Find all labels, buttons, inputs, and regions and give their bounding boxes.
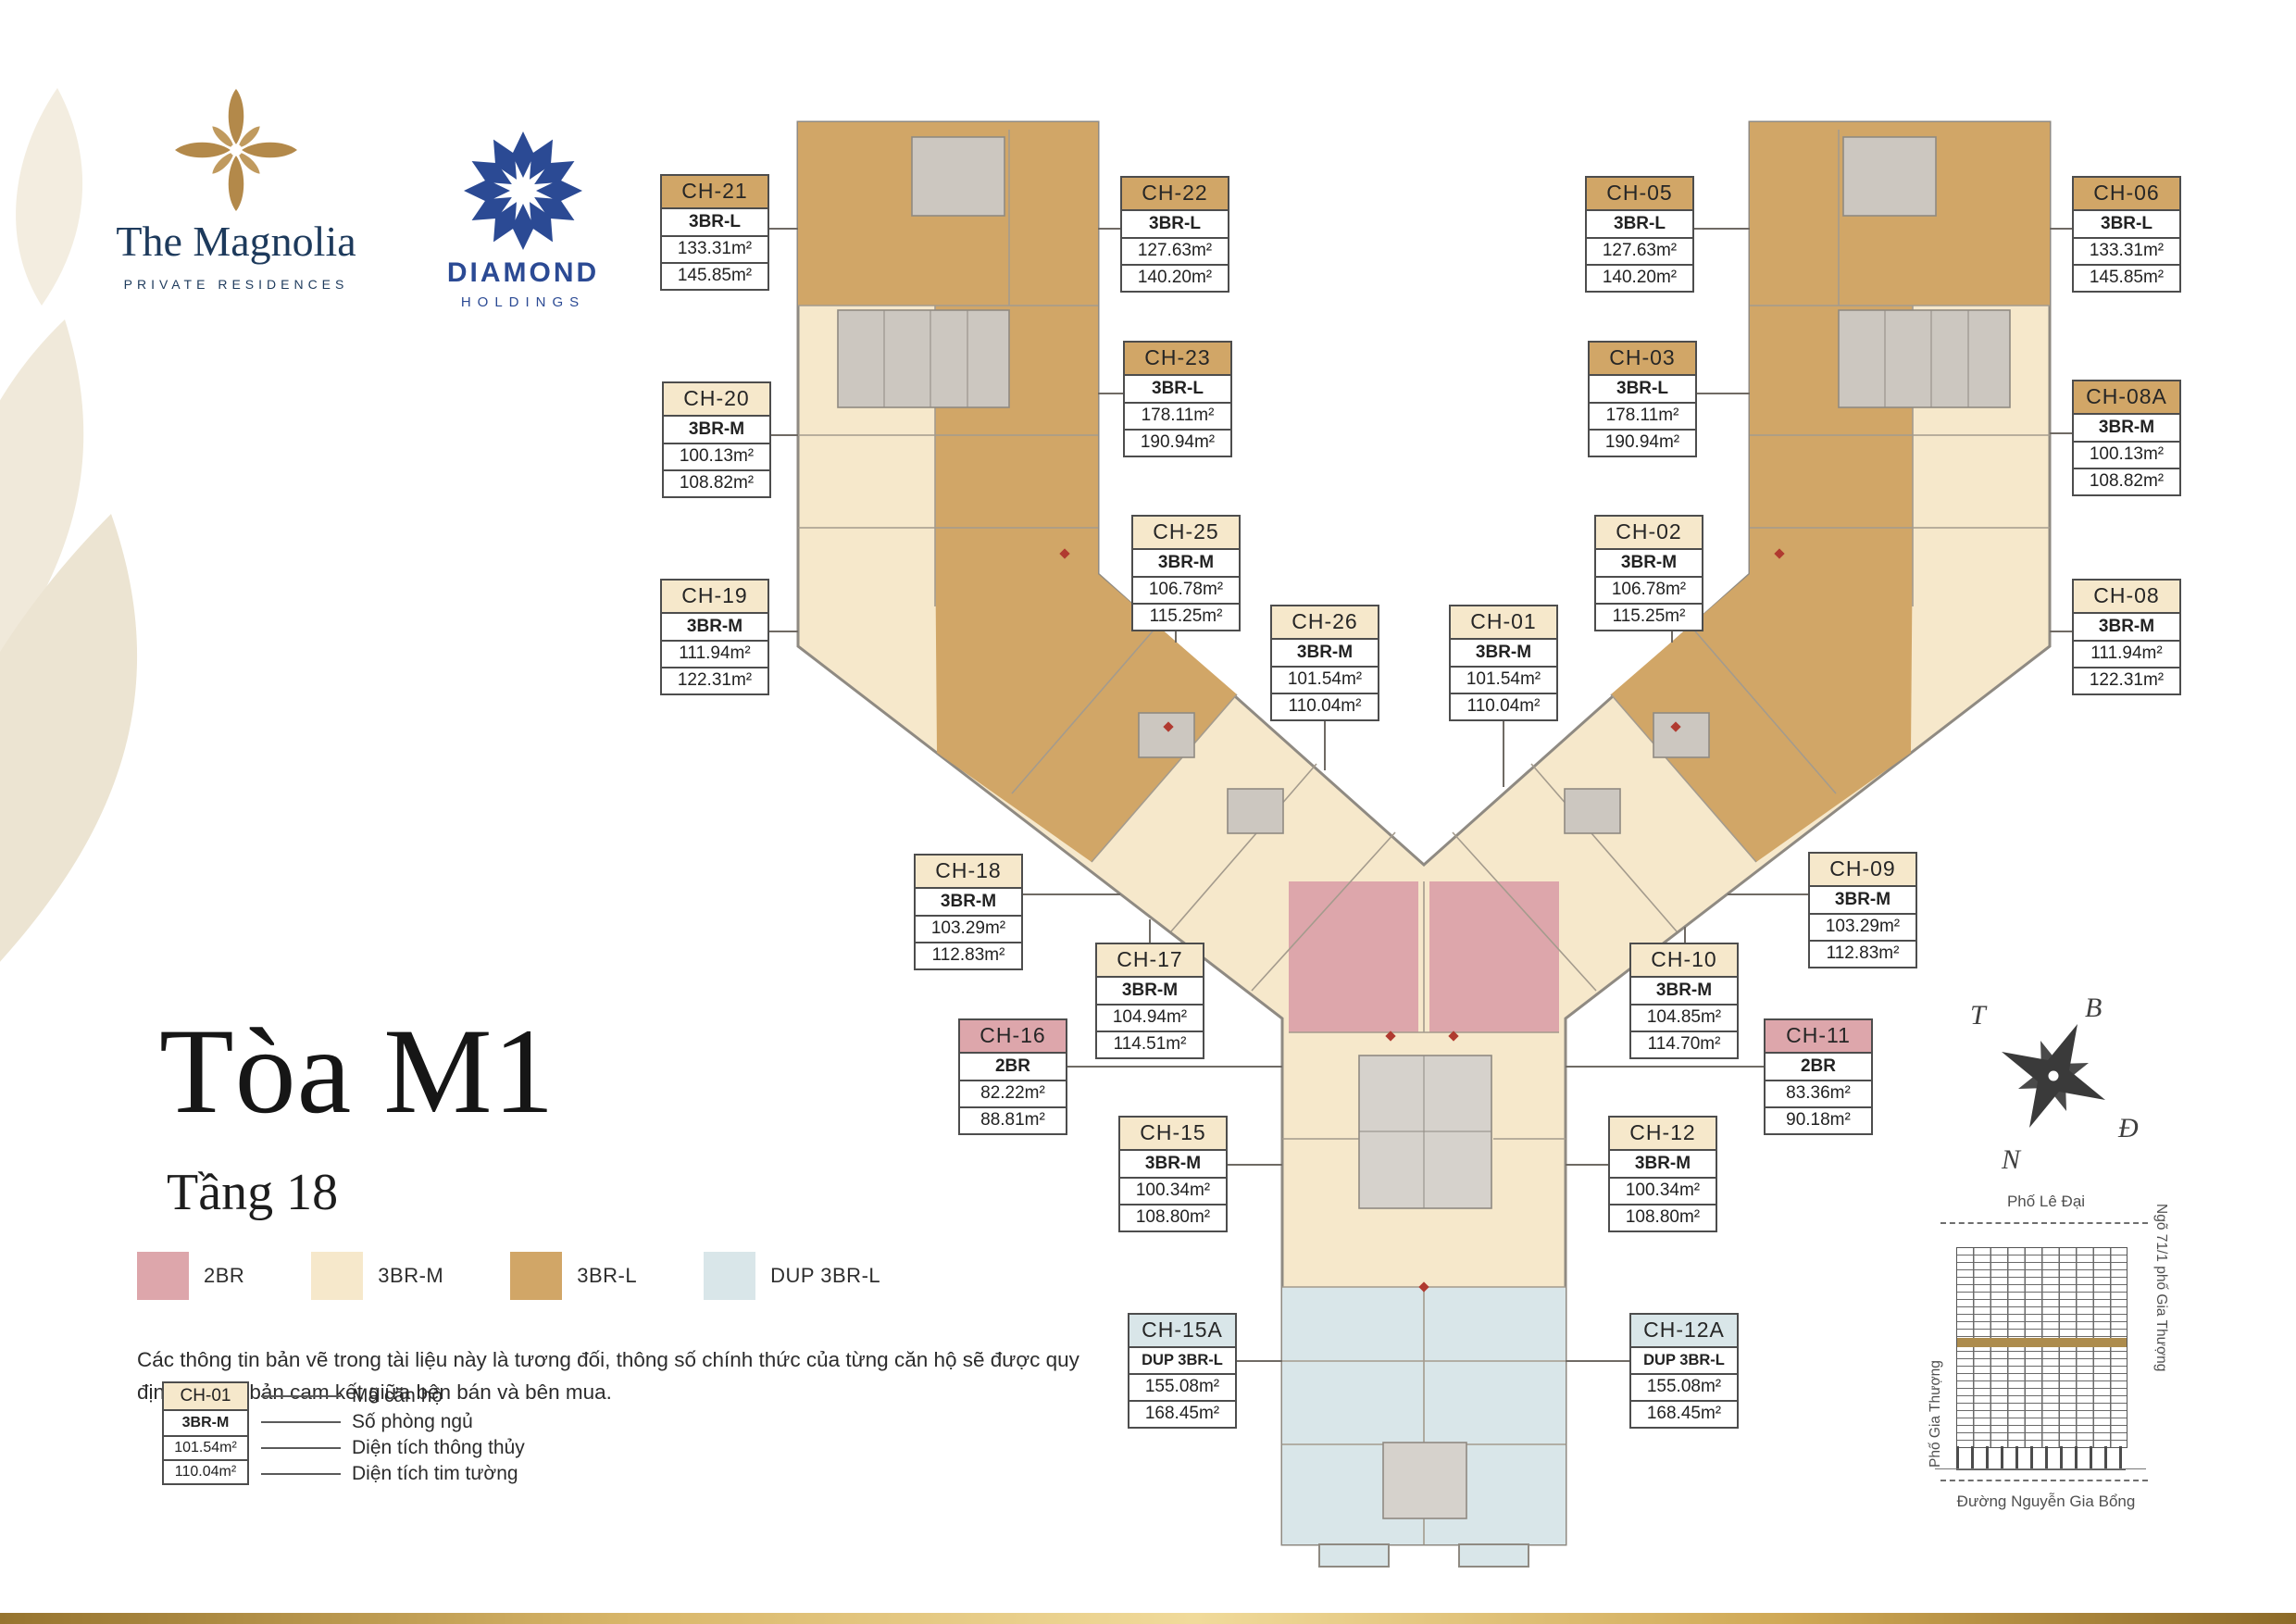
unit-code: CH-26 <box>1272 606 1378 640</box>
unit-area-net: 101.54m² <box>1272 668 1378 694</box>
unit-area-net: 100.13m² <box>664 444 769 471</box>
unit-code: CH-03 <box>1590 343 1695 376</box>
unit-callout: CH-20 3BR-M 100.13m² 108.82m² <box>662 381 771 498</box>
unit-type: 3BR-M <box>1097 978 1203 1006</box>
unit-type: 3BR-L <box>1125 376 1230 404</box>
unit-callout: CH-02 3BR-M 106.78m² 115.25m² <box>1594 515 1703 631</box>
unit-area-gross: 140.20m² <box>1587 266 1692 291</box>
unit-type: 3BR-M <box>1133 550 1239 578</box>
unit-area-net: 83.36m² <box>1766 1081 1871 1108</box>
key-dash <box>261 1421 341 1423</box>
unit-area-gross: 190.94m² <box>1125 431 1230 456</box>
unit-type: 3BR-M <box>916 889 1021 917</box>
unit-type: 2BR <box>960 1054 1066 1081</box>
unit-area-net: 101.54m² <box>1451 668 1556 694</box>
unit-code: CH-12A <box>1631 1315 1737 1348</box>
unit-code: CH-23 <box>1125 343 1230 376</box>
unit-type: 3BR-M <box>662 614 767 642</box>
key-label-gross-area: Diện tích tim tường <box>261 1465 518 1483</box>
unit-callout: CH-17 3BR-M 104.94m² 114.51m² <box>1095 943 1204 1059</box>
page-title-floor: Tầng 18 <box>167 1163 338 1222</box>
unit-type: 3BR-M <box>664 417 769 444</box>
legend-swatch <box>510 1252 562 1300</box>
key-label-code: Mã căn hộ <box>261 1387 443 1405</box>
unit-area-gross: 140.20m² <box>1122 266 1228 291</box>
unit-code: CH-11 <box>1766 1020 1871 1054</box>
unit-code: CH-16 <box>960 1020 1066 1054</box>
unit-code: CH-05 <box>1587 178 1692 211</box>
legend-label: DUP 3BR-L <box>770 1264 880 1288</box>
unit-type: 3BR-M <box>1451 640 1556 668</box>
compass-east-label: Đ <box>2117 1113 2139 1143</box>
unit-area-net: 100.34m² <box>1120 1179 1226 1206</box>
unit-area-net: 104.94m² <box>1097 1006 1203 1032</box>
unit-type: 3BR-M <box>1120 1151 1226 1179</box>
unit-code: CH-18 <box>916 856 1021 889</box>
key-unit-code: CH-01 <box>164 1383 247 1411</box>
unit-callout: CH-26 3BR-M 101.54m² 110.04m² <box>1270 605 1379 721</box>
unit-callout: CH-05 3BR-L 127.63m² 140.20m² <box>1585 176 1694 293</box>
unit-type: 3BR-M <box>1810 887 1915 915</box>
unit-area-net: 127.63m² <box>1587 239 1692 266</box>
site-map-ground-floor <box>1956 1446 2126 1470</box>
unit-area-gross: 115.25m² <box>1133 605 1239 630</box>
key-unit-area-gross: 110.04m² <box>164 1461 247 1483</box>
unit-area-gross: 145.85m² <box>662 264 767 289</box>
unit-area-gross: 168.45m² <box>1631 1402 1737 1427</box>
unit-area-gross: 108.82m² <box>2074 469 2179 494</box>
unit-code: CH-02 <box>1596 517 1702 550</box>
street-top-label: Phố Lê Đại <box>1990 1193 2102 1211</box>
unit-area-net: 100.13m² <box>2074 443 2179 469</box>
unit-callout: CH-25 3BR-M 106.78m² 115.25m² <box>1131 515 1241 631</box>
unit-type: 3BR-L <box>2074 211 2179 239</box>
unit-code: CH-01 <box>1451 606 1556 640</box>
unit-type: 3BR-L <box>1122 211 1228 239</box>
unit-type: 3BR-M <box>1596 550 1702 578</box>
unit-area-net: 104.85m² <box>1631 1006 1737 1032</box>
unit-callout: CH-09 3BR-M 103.29m² 112.83m² <box>1808 852 1917 968</box>
unit-type: 3BR-M <box>2074 614 2179 642</box>
compass-south-label: N <box>2001 1144 2022 1175</box>
legend-label: 3BR-L <box>577 1264 637 1288</box>
road-top <box>1940 1222 2148 1224</box>
unit-callout: CH-12 3BR-M 100.34m² 108.80m² <box>1608 1116 1717 1232</box>
key-dash <box>261 1473 341 1475</box>
unit-callout: CH-18 3BR-M 103.29m² 112.83m² <box>914 854 1023 970</box>
unit-code: CH-06 <box>2074 178 2179 211</box>
unit-callout: CH-19 3BR-M 111.94m² 122.31m² <box>660 579 769 695</box>
legend-item: 2BR <box>137 1252 244 1300</box>
unit-area-gross: 145.85m² <box>2074 266 2179 291</box>
zone-3brl <box>798 122 2050 862</box>
unit-area-gross: 168.45m² <box>1129 1402 1235 1427</box>
unit-callout: CH-01 3BR-M 101.54m² 110.04m² <box>1449 605 1558 721</box>
legend: 2BR 3BR-M 3BR-L DUP 3BR-L <box>137 1252 880 1300</box>
unit-type: 3BR-M <box>1272 640 1378 668</box>
unit-area-gross: 114.51m² <box>1097 1032 1203 1057</box>
unit-callout: CH-03 3BR-L 178.11m² 190.94m² <box>1588 341 1697 457</box>
legend-label: 3BR-M <box>378 1264 443 1288</box>
unit-area-net: 100.34m² <box>1610 1179 1716 1206</box>
unit-type: 3BR-M <box>1631 978 1737 1006</box>
unit-type: 2BR <box>1766 1054 1871 1081</box>
unit-type: DUP 3BR-L <box>1129 1348 1235 1375</box>
unit-area-gross: 110.04m² <box>1272 694 1378 719</box>
unit-callout: CH-22 3BR-L 127.63m² 140.20m² <box>1120 176 1229 293</box>
key-label-bedrooms: Số phòng ngủ <box>261 1413 473 1431</box>
unit-area-net: 178.11m² <box>1590 404 1695 431</box>
unit-area-gross: 115.25m² <box>1596 605 1702 630</box>
unit-area-net: 127.63m² <box>1122 239 1228 266</box>
unit-type: 3BR-L <box>1587 211 1692 239</box>
compass-west-label: T <box>1970 1000 1988 1031</box>
key-unit-type: 3BR-M <box>164 1411 247 1437</box>
key-dash <box>261 1447 341 1449</box>
unit-area-gross: 122.31m² <box>2074 668 2179 693</box>
unit-callout: CH-15 3BR-M 100.34m² 108.80m² <box>1118 1116 1228 1232</box>
key-sample-box: CH-01 3BR-M 101.54m² 110.04m² <box>162 1381 249 1485</box>
legend-item: DUP 3BR-L <box>704 1252 880 1300</box>
unit-area-net: 103.29m² <box>916 917 1021 943</box>
site-map-baseline <box>1935 1468 2146 1469</box>
unit-callout: CH-06 3BR-L 133.31m² 145.85m² <box>2072 176 2181 293</box>
brochure-page: The Magnolia PRIVATE RESIDENCES DIAMOND <box>0 0 2296 1624</box>
legend-item: 3BR-M <box>311 1252 443 1300</box>
unit-callout: CH-15A DUP 3BR-L 155.08m² 168.45m² <box>1128 1313 1237 1429</box>
unit-code: CH-17 <box>1097 944 1203 978</box>
unit-type: 3BR-L <box>1590 376 1695 404</box>
footer-gold-bar <box>0 1613 2296 1624</box>
unit-area-gross: 122.31m² <box>662 668 767 693</box>
unit-area-net: 178.11m² <box>1125 404 1230 431</box>
unit-area-gross: 88.81m² <box>960 1108 1066 1133</box>
compass: B Đ N T <box>1970 993 2139 1175</box>
unit-callout: CH-23 3BR-L 178.11m² 190.94m² <box>1123 341 1232 457</box>
unit-area-net: 155.08m² <box>1129 1375 1235 1402</box>
legend-swatch <box>137 1252 189 1300</box>
unit-code: CH-19 <box>662 581 767 614</box>
unit-code: CH-25 <box>1133 517 1239 550</box>
unit-area-gross: 108.80m² <box>1610 1206 1716 1230</box>
unit-callout: CH-11 2BR 83.36m² 90.18m² <box>1764 1018 1873 1135</box>
key-label-net-area: Diện tích thông thủy <box>261 1439 525 1457</box>
unit-callout: CH-16 2BR 82.22m² 88.81m² <box>958 1018 1067 1135</box>
legend-swatch <box>704 1252 755 1300</box>
unit-area-gross: 108.82m² <box>664 471 769 496</box>
street-left-label: Phố Gia Thượng <box>1928 1282 1944 1468</box>
unit-area-gross: 90.18m² <box>1766 1108 1871 1133</box>
unit-type: DUP 3BR-L <box>1631 1348 1737 1375</box>
unit-area-gross: 112.83m² <box>1810 942 1915 967</box>
unit-callout: CH-08A 3BR-M 100.13m² 108.82m² <box>2072 380 2181 496</box>
unit-area-net: 133.31m² <box>662 237 767 264</box>
unit-area-net: 133.31m² <box>2074 239 2179 266</box>
road-bottom <box>1940 1480 2148 1481</box>
compass-north-label: B <box>2085 993 2102 1023</box>
unit-code: CH-09 <box>1810 854 1915 887</box>
unit-code: CH-15A <box>1129 1315 1235 1348</box>
unit-code: CH-12 <box>1610 1118 1716 1151</box>
unit-area-net: 155.08m² <box>1631 1375 1737 1402</box>
unit-area-gross: 114.70m² <box>1631 1032 1737 1057</box>
street-bottom-label: Đường Nguyễn Gia Bổng <box>1944 1493 2148 1511</box>
unit-code: CH-21 <box>662 176 767 209</box>
legend-item: 3BR-L <box>510 1252 637 1300</box>
key-dash <box>261 1395 341 1397</box>
unit-code: CH-15 <box>1120 1118 1226 1151</box>
unit-callout: CH-08 3BR-M 111.94m² 122.31m² <box>2072 579 2181 695</box>
unit-type: 3BR-M <box>1610 1151 1716 1179</box>
unit-code: CH-08A <box>2074 381 2179 415</box>
unit-code: CH-22 <box>1122 178 1228 211</box>
unit-area-gross: 112.83m² <box>916 943 1021 968</box>
unit-area-net: 103.29m² <box>1810 915 1915 942</box>
unit-callout: CH-12A DUP 3BR-L 155.08m² 168.45m² <box>1629 1313 1739 1429</box>
unit-area-net: 82.22m² <box>960 1081 1066 1108</box>
unit-area-net: 106.78m² <box>1133 578 1239 605</box>
unit-type: 3BR-L <box>662 209 767 237</box>
unit-area-gross: 108.80m² <box>1120 1206 1226 1230</box>
page-title-building: Tòa M1 <box>159 1000 555 1142</box>
unit-code: CH-10 <box>1631 944 1737 978</box>
unit-type: 3BR-M <box>2074 415 2179 443</box>
unit-area-net: 106.78m² <box>1596 578 1702 605</box>
unit-callout: CH-21 3BR-L 133.31m² 145.85m² <box>660 174 769 291</box>
unit-area-net: 111.94m² <box>662 642 767 668</box>
street-right-label: Ngõ 71/1 phố Gia Thượng <box>2152 1204 2169 1491</box>
unit-callout: CH-10 3BR-M 104.85m² 114.70m² <box>1629 943 1739 1059</box>
unit-area-gross: 190.94m² <box>1590 431 1695 456</box>
unit-code: CH-08 <box>2074 581 2179 614</box>
site-map-floor-highlight <box>1957 1338 2127 1347</box>
unit-area-net: 111.94m² <box>2074 642 2179 668</box>
legend-swatch <box>311 1252 363 1300</box>
unit-code: CH-20 <box>664 383 769 417</box>
site-map-building <box>1956 1247 2128 1448</box>
unit-area-gross: 110.04m² <box>1451 694 1556 719</box>
legend-label: 2BR <box>204 1264 244 1288</box>
key-unit-area-net: 101.54m² <box>164 1437 247 1461</box>
